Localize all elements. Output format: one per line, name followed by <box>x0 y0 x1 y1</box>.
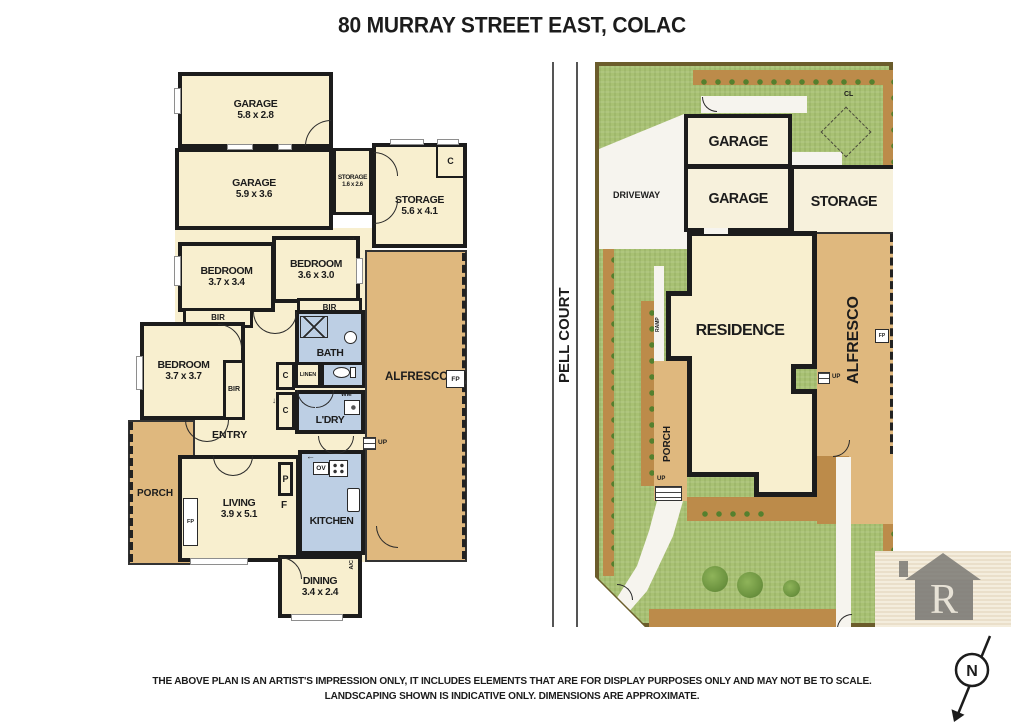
floor-plan: PORCH GARAGE 5.8 x 2.8 GARAGE 5.9 x 3.6 … <box>85 60 477 628</box>
room-label: KITCHEN <box>310 515 354 527</box>
porch-posts-icon <box>129 422 133 562</box>
porch-label: PORCH <box>137 488 173 499</box>
pantry-label: P <box>282 474 288 484</box>
fridge-label: F <box>281 500 287 511</box>
site-alfresco-extension <box>849 456 897 524</box>
oven-label: OV <box>316 465 325 472</box>
fireplace-label: FP <box>187 519 194 525</box>
room-bedroom-one: BEDROOM 3.7 x 3.4 <box>178 242 275 312</box>
site-storage-label: STORAGE <box>810 193 876 210</box>
logo-roof-icon <box>905 553 981 580</box>
room-alfresco <box>365 250 467 562</box>
window-icon <box>437 139 459 145</box>
basin-icon <box>344 331 357 344</box>
site-alfresco-label: ALFRESCO <box>845 302 863 384</box>
up-label: UP <box>378 439 387 446</box>
door-arrow-icon: ← <box>306 451 315 461</box>
room-dims: 5.6 x 4.1 <box>401 206 437 218</box>
logo-house-icon: R <box>915 580 973 620</box>
pantry-box: P <box>278 462 293 496</box>
clothesline-icon <box>821 107 872 158</box>
washing-machine-icon <box>344 400 360 415</box>
window-icon <box>136 356 143 390</box>
room-label: GARAGE <box>234 98 278 110</box>
garden-bed <box>641 301 654 486</box>
cupboard-label: C <box>447 156 454 166</box>
room-storage-small: STORAGE 1.6 x 2.6 <box>333 148 372 215</box>
disclaimer: THE ABOVE PLAN IS AN ARTIST'S IMPRESSION… <box>0 674 1024 704</box>
disclaimer-line1: THE ABOVE PLAN IS AN ARTIST'S IMPRESSION… <box>20 674 1003 689</box>
window-icon <box>390 139 424 145</box>
site-residence-label: RESIDENCE <box>659 322 821 340</box>
up-label: UP <box>832 374 840 380</box>
fireplace-label: FP <box>879 333 885 339</box>
room-dims: 5.9 x 3.6 <box>236 189 272 201</box>
fireplace-box: FP <box>183 498 198 546</box>
alfresco-posts-icon <box>462 253 466 559</box>
ramp-label: RAMP <box>655 296 661 332</box>
logo-initial: R <box>930 579 958 621</box>
garden-path <box>836 457 851 631</box>
stairs-icon <box>363 437 376 450</box>
room-dims: 1.6 x 2.6 <box>342 182 363 189</box>
site-garage-label: GARAGE <box>708 133 767 150</box>
room-label: LIVING <box>223 497 256 509</box>
room-label: L'DRY <box>316 414 345 426</box>
cupboard-box: C <box>276 362 295 390</box>
fireplace-box: FP <box>875 329 889 343</box>
window-icon <box>356 258 363 284</box>
cupboard-box: C <box>436 147 463 178</box>
room-linen: LINEN <box>295 362 321 388</box>
cupboard-box: C <box>276 392 295 430</box>
shower-icon <box>300 316 328 338</box>
aircon-label: A/C <box>349 560 355 569</box>
bir-label: BIR <box>228 386 240 394</box>
shrub-row <box>694 502 766 517</box>
fireplace-box: FP <box>446 370 465 388</box>
site-garage-lower: GARAGE <box>684 165 792 232</box>
page-title: 80 MURRAY STREET EAST, COLAC <box>0 13 1024 38</box>
alfresco-posts-icon <box>890 234 894 454</box>
room-label: STORAGE <box>338 174 367 181</box>
site-garage-top: GARAGE <box>684 114 792 168</box>
garden-bed <box>603 216 614 576</box>
tree-icon <box>783 580 800 597</box>
stairs-icon <box>655 486 682 501</box>
room-label: STORAGE <box>395 194 444 206</box>
dirt-area <box>649 609 837 631</box>
window-icon <box>227 144 253 150</box>
tree-icon <box>702 566 728 592</box>
fireplace-label: FP <box>451 376 459 383</box>
street-line <box>552 62 554 627</box>
window-icon <box>174 256 181 286</box>
window-icon <box>174 88 181 114</box>
street-line <box>576 62 578 627</box>
street-name-label: PELL COURT <box>556 283 573 383</box>
toilet-tank-icon <box>350 367 356 378</box>
driveway-label: DRIVEWAY <box>613 190 660 200</box>
cupboard-label: C <box>283 406 289 415</box>
bir-strip: BIR <box>223 360 245 420</box>
room-dims: 3.7 x 3.7 <box>165 371 201 383</box>
window-icon <box>291 614 343 621</box>
cooktop-icon <box>329 460 348 477</box>
door-arrow-icon: ↓ <box>272 396 276 405</box>
oven-box: OV <box>313 462 329 475</box>
room-label: BEDROOM <box>157 359 209 371</box>
site-porch-label: PORCH <box>662 406 673 462</box>
cupboard-label: C <box>283 371 289 380</box>
room-label: DINING <box>303 575 337 587</box>
room-dims: 3.4 x 2.4 <box>302 587 338 599</box>
room-dims: 3.9 x 5.1 <box>221 509 257 521</box>
garden-bed <box>693 70 893 85</box>
window-icon <box>278 144 292 150</box>
room-label: BATH <box>317 347 344 359</box>
room-dims: 3.6 x 3.0 <box>298 270 334 282</box>
up-label: UP <box>657 476 665 482</box>
door-arrow-icon: → <box>347 232 356 242</box>
clothesline-label: CL <box>844 91 853 98</box>
garden-bed <box>883 70 893 166</box>
room-dims: 3.7 x 3.4 <box>208 277 244 289</box>
linen-label: LINEN <box>300 372 317 378</box>
door-gap <box>704 228 728 234</box>
alfresco-label: ALFRESCO <box>385 371 448 383</box>
sink-icon <box>347 488 360 512</box>
watermark-logo: R <box>875 551 1011 627</box>
washing-machine-label: WM <box>341 392 352 398</box>
window-icon <box>190 558 248 565</box>
tree-icon <box>737 572 763 598</box>
room-label: GARAGE <box>232 177 276 189</box>
room-label: BEDROOM <box>290 258 342 270</box>
room-garage-lower: GARAGE 5.9 x 3.6 <box>175 148 333 230</box>
room-dims: 5.8 x 2.8 <box>237 110 273 122</box>
room-label: BEDROOM <box>200 265 252 277</box>
site-garage-label: GARAGE <box>708 190 767 207</box>
site-plan: DRIVEWAY CL GARAGE GARAGE STORAGE ALFRES… <box>595 62 893 627</box>
stairs-icon <box>818 372 830 384</box>
disclaimer-line2: LANDSCAPING SHOWN IS INDICATIVE ONLY. DI… <box>20 689 1003 704</box>
floorplan-page: { "title": "80 MURRAY STREET EAST, COLAC… <box>0 0 1024 724</box>
room-bedroom-two: BEDROOM 3.6 x 3.0 <box>272 236 360 303</box>
toilet-icon <box>333 367 350 378</box>
